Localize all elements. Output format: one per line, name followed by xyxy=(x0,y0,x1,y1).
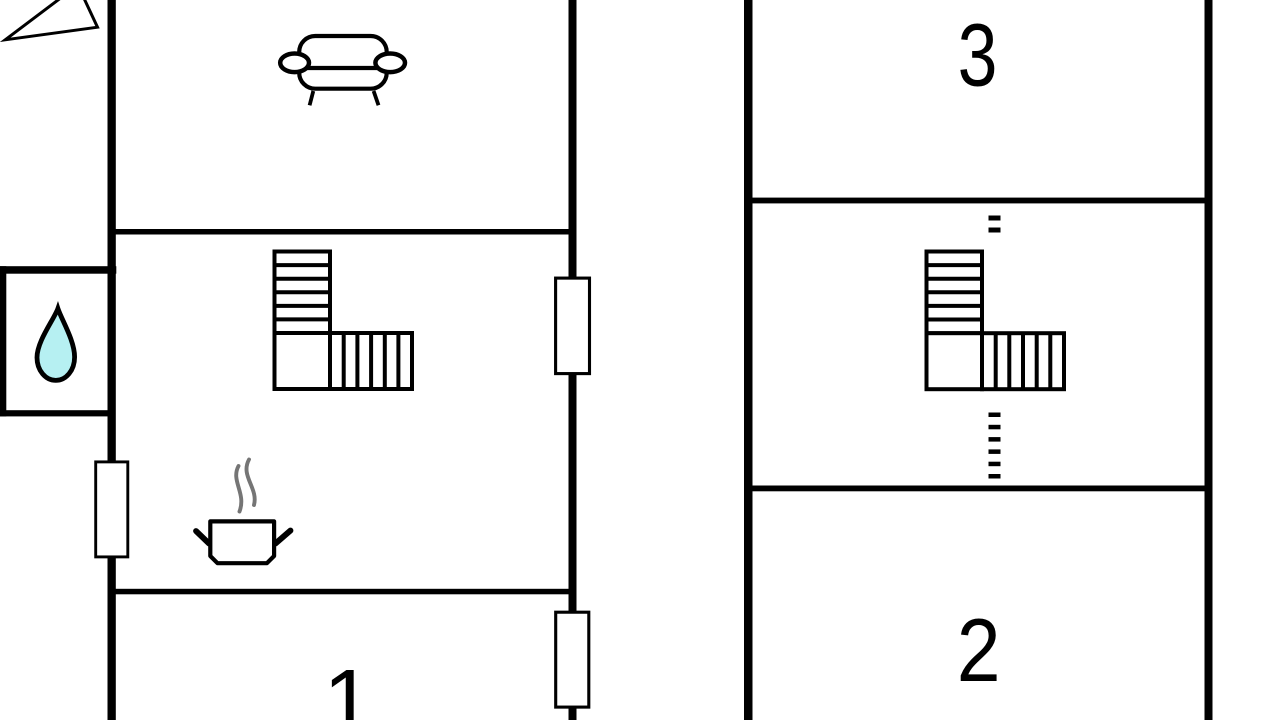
svg-text:2: 2 xyxy=(957,600,1001,700)
svg-text:3: 3 xyxy=(958,6,998,105)
svg-text:1: 1 xyxy=(323,651,373,720)
